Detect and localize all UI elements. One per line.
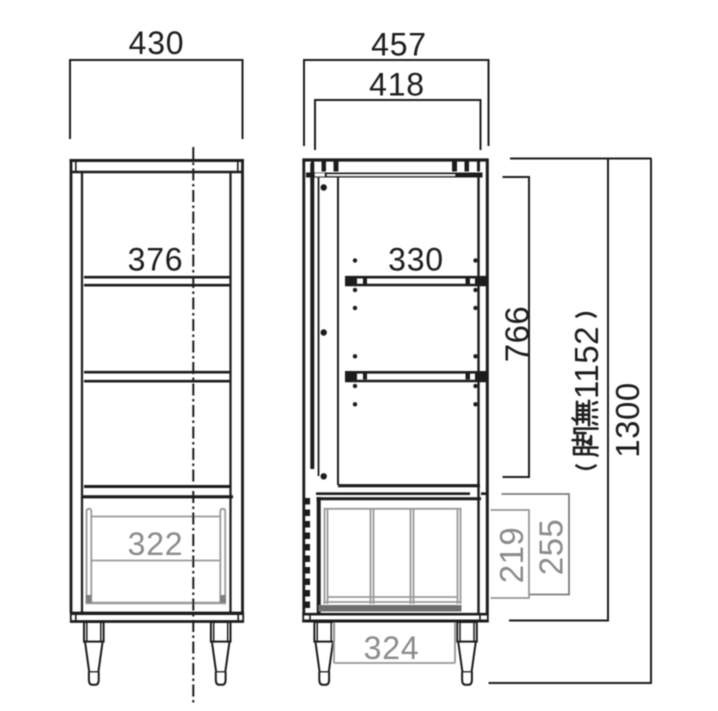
svg-text:255: 255 [533, 519, 570, 576]
svg-text:1300: 1300 [609, 382, 646, 457]
svg-text:376: 376 [128, 242, 184, 278]
svg-text:330: 330 [388, 242, 444, 278]
svg-text:457: 457 [371, 27, 427, 63]
svg-text:324: 324 [364, 630, 420, 666]
svg-text:1152: 1152 [568, 326, 605, 399]
svg-text:418: 418 [369, 67, 425, 103]
svg-text:430: 430 [129, 25, 185, 61]
svg-text:766: 766 [499, 306, 536, 363]
svg-text:219: 219 [493, 527, 530, 584]
svg-text:322: 322 [128, 526, 184, 562]
